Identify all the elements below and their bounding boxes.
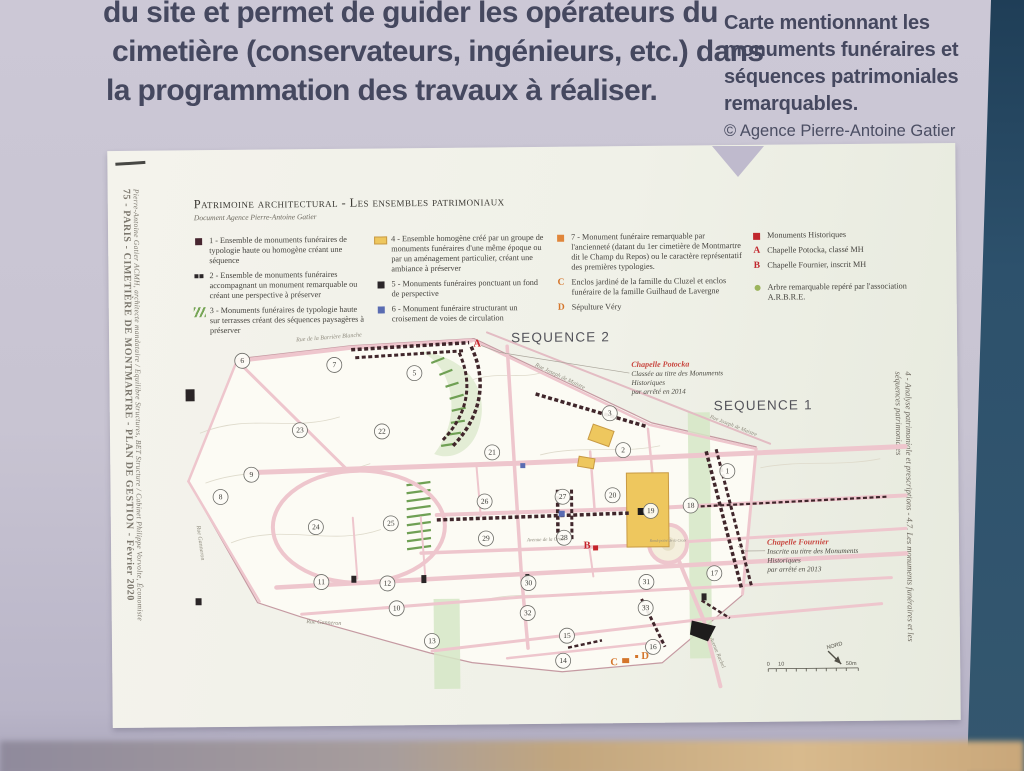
legend-letter-C-icon: C bbox=[554, 278, 567, 298]
legend-item: BChapelle Fournier, inscrit MH bbox=[750, 259, 914, 271]
legend-item-text: Enclos jardiné de la famille du Cluzel e… bbox=[571, 276, 742, 298]
legend-square-icon bbox=[375, 304, 388, 324]
division-number: 27 bbox=[559, 492, 567, 501]
division-number: 12 bbox=[384, 579, 392, 588]
division-number: 17 bbox=[711, 568, 719, 577]
wall-caption: Carte mentionnant les monuments funérair… bbox=[724, 10, 958, 118]
monument-marker bbox=[196, 598, 202, 605]
map-poster: 75 - PARIS - CIMETIÈRE DE MONTMARTRE - P… bbox=[107, 143, 960, 728]
legend-letter-D-icon: D bbox=[555, 303, 568, 313]
division-number: 32 bbox=[524, 608, 532, 617]
legend-item: CEnclos jardiné de la famille du Cluzel … bbox=[554, 276, 742, 298]
intro-line: du site et permet de guider les opérateu… bbox=[103, 0, 763, 32]
sequence-label: SEQUENCE 2 bbox=[511, 329, 610, 345]
chapel-marker-B: B bbox=[584, 540, 591, 551]
street-label: Rue de la Barrière Blanche bbox=[295, 332, 362, 343]
north-label: NORD bbox=[826, 641, 843, 651]
division-number: 11 bbox=[318, 577, 326, 586]
legend-item-text: 4 - Ensemble homogène créé par un groupe… bbox=[391, 233, 546, 274]
monument-marker bbox=[186, 389, 195, 401]
division-number: 9 bbox=[249, 470, 253, 479]
division-number: 2 bbox=[621, 445, 625, 454]
ground bbox=[0, 741, 1024, 771]
legend-item-text: Arbre remarquable repéré par l'associati… bbox=[768, 281, 915, 302]
division-number: 24 bbox=[312, 522, 320, 531]
legend-item-text: Monuments Historiques bbox=[767, 230, 846, 241]
homogeneous-ensemble-area bbox=[578, 456, 595, 468]
legend-rect-icon bbox=[374, 234, 387, 274]
street-label: Rue Joseph de Maistre bbox=[708, 414, 758, 438]
division-number: 33 bbox=[642, 603, 650, 612]
legend-square-icon bbox=[192, 236, 205, 266]
legend-item: AChapelle Potocka, classé MH bbox=[750, 244, 914, 256]
contour-line bbox=[760, 459, 880, 468]
monument-marker bbox=[702, 593, 707, 600]
intro-line: la programmation des travaux à réaliser. bbox=[106, 71, 763, 110]
legend-column-3: 7 - Monument funéraire remarquable par l… bbox=[554, 231, 751, 338]
division-number: 19 bbox=[647, 506, 655, 515]
legend-item: 2 - Ensemble de monuments funéraires acc… bbox=[192, 270, 366, 302]
street-label: Rue Ganneron bbox=[195, 524, 206, 560]
division-number: 8 bbox=[219, 492, 223, 501]
legend-item-text: 7 - Monument funéraire remarquable par l… bbox=[571, 231, 742, 273]
division-number: 18 bbox=[687, 501, 695, 510]
division-number: 21 bbox=[488, 448, 496, 457]
legend-item-text: 5 - Monuments funéraires ponctuant un fo… bbox=[391, 278, 546, 299]
scale-bar bbox=[768, 668, 858, 669]
legend-item-text: Sépulture Véry bbox=[572, 302, 622, 312]
scale-label: 0 bbox=[767, 662, 770, 668]
copyright-credit: © Agence Pierre-Antoine Gatier bbox=[724, 122, 955, 141]
chapel-annotation-line: Inscrite au titre des Monuments bbox=[766, 547, 858, 556]
legend-item-text: 6 - Monument funéraire structurant un cr… bbox=[392, 303, 547, 324]
chapel-annotation-line: Classée au titre des Monuments bbox=[631, 369, 723, 378]
poster-left-margin-text: 75 - PARIS - CIMETIÈRE DE MONTMARTRE - P… bbox=[121, 189, 146, 709]
division-number: 20 bbox=[609, 490, 617, 499]
legend-letter-A-icon: A bbox=[750, 246, 763, 256]
division-number: 31 bbox=[643, 577, 651, 586]
caption-callout-tail bbox=[712, 146, 764, 177]
map-legend: 1 - Ensemble de monuments funéraires de … bbox=[192, 229, 923, 341]
legend-hatch-icon bbox=[193, 306, 206, 336]
caption-line: remarquables. bbox=[724, 91, 958, 118]
legend-square-icon bbox=[374, 279, 387, 299]
division-number: 5 bbox=[412, 368, 416, 377]
division-number: 15 bbox=[563, 631, 571, 640]
chapel-annotation-line: Historiques bbox=[766, 556, 801, 564]
chapel-marker-D: D bbox=[641, 651, 649, 662]
legend-item-text: Chapelle Fournier, inscrit MH bbox=[767, 260, 866, 271]
legend-item: 1 - Ensemble de monuments funéraires de … bbox=[192, 235, 366, 267]
division-number: 13 bbox=[428, 636, 436, 645]
division-number: 7 bbox=[332, 360, 336, 369]
cemetery-map: 6753232222191827262018192524282917111230… bbox=[177, 326, 920, 698]
legend-item: Arbre remarquable repéré par l'associati… bbox=[751, 281, 915, 303]
monument-marker bbox=[421, 575, 426, 583]
division-number: 6 bbox=[240, 356, 244, 365]
chapel-marker-square bbox=[593, 545, 598, 550]
poster-corner-mark bbox=[115, 161, 145, 166]
map-subtitle: Document Agence Pierre-Antoine Gatier bbox=[194, 212, 317, 222]
legend-item-text: 2 - Ensemble de monuments funéraires acc… bbox=[209, 270, 366, 302]
legend-dsquares-icon bbox=[192, 271, 205, 301]
division-number: 1 bbox=[725, 466, 729, 475]
caption-line: séquences patrimoniales bbox=[724, 64, 958, 91]
legend-dot-icon bbox=[751, 283, 764, 303]
scale-label: 50m bbox=[846, 661, 857, 667]
street-label: Rue Ganneron bbox=[305, 619, 341, 627]
legend-square-icon bbox=[554, 233, 567, 273]
legend-letter-B-icon: B bbox=[750, 261, 763, 271]
legend-item: 4 - Ensemble homogène créé par un groupe… bbox=[374, 233, 546, 275]
legend-item: 7 - Monument funéraire remarquable par l… bbox=[554, 231, 742, 273]
chapel-marker-C: C bbox=[610, 657, 618, 668]
chapel-annotation-line: par arrêté en 2014 bbox=[631, 388, 687, 397]
intro-line: cimetière (conservateurs, ingénieurs, et… bbox=[112, 32, 763, 71]
legend-column-2: 4 - Ensemble homogène créé par un groupe… bbox=[374, 233, 555, 340]
chapel-annotation-line: par arrêté en 2013 bbox=[766, 565, 822, 574]
chapel-annotation-title: Chapelle Potocka bbox=[631, 360, 689, 370]
chapel-annotation-title: Chapelle Fournier bbox=[767, 537, 830, 547]
chapel-marker-A: A bbox=[473, 339, 481, 350]
legend-item: 5 - Monuments funéraires ponctuant un fo… bbox=[374, 278, 546, 300]
street-label: Rond-point de la Croix bbox=[649, 538, 687, 543]
division-number: 3 bbox=[608, 408, 612, 417]
chapel-annotation-line: Historiques bbox=[630, 379, 665, 387]
legend-square-icon bbox=[750, 231, 763, 241]
chapel-marker-square bbox=[622, 658, 629, 663]
division-number: 23 bbox=[296, 425, 304, 434]
panel-right-blue-band bbox=[964, 0, 1024, 771]
caption-line: monuments funéraires et bbox=[724, 37, 958, 64]
division-number: 25 bbox=[387, 519, 395, 528]
division-number: 16 bbox=[649, 642, 657, 651]
scale-label: 10 bbox=[778, 662, 784, 668]
legend-item: DSépulture Véry bbox=[555, 301, 743, 313]
chapel-marker-square bbox=[635, 655, 638, 658]
division-number: 10 bbox=[393, 604, 401, 613]
legend-column-4: Monuments HistoriquesAChapelle Potocka, … bbox=[750, 229, 923, 336]
monument-marker bbox=[351, 576, 356, 583]
monument-marker bbox=[520, 463, 525, 468]
division-number: 14 bbox=[559, 656, 567, 665]
photo-of-information-panel: du site et permet de guider les opérateu… bbox=[0, 0, 1024, 771]
division-number: 22 bbox=[378, 427, 386, 436]
division-number: 26 bbox=[481, 497, 489, 506]
legend-item: 6 - Monument funéraire structurant un cr… bbox=[375, 303, 547, 325]
legend-item-text: 1 - Ensemble de monuments funéraires de … bbox=[209, 235, 366, 267]
map-title: Patrimoine architectural - Les ensembles… bbox=[194, 194, 505, 212]
legend-item-text: Chapelle Potocka, classé MH bbox=[767, 245, 864, 256]
caption-line: Carte mentionnant les bbox=[724, 10, 958, 37]
division-number: 30 bbox=[525, 578, 533, 587]
wall-intro-paragraph: du site et permet de guider les opérateu… bbox=[103, 0, 763, 110]
division-number: 29 bbox=[482, 534, 490, 543]
sequence-label: SEQUENCE 1 bbox=[714, 397, 813, 413]
legend-item: Monuments Historiques bbox=[750, 229, 914, 241]
monument-marker bbox=[559, 511, 565, 517]
legend-column-1: 1 - Ensemble de monuments funéraires de … bbox=[192, 235, 375, 342]
